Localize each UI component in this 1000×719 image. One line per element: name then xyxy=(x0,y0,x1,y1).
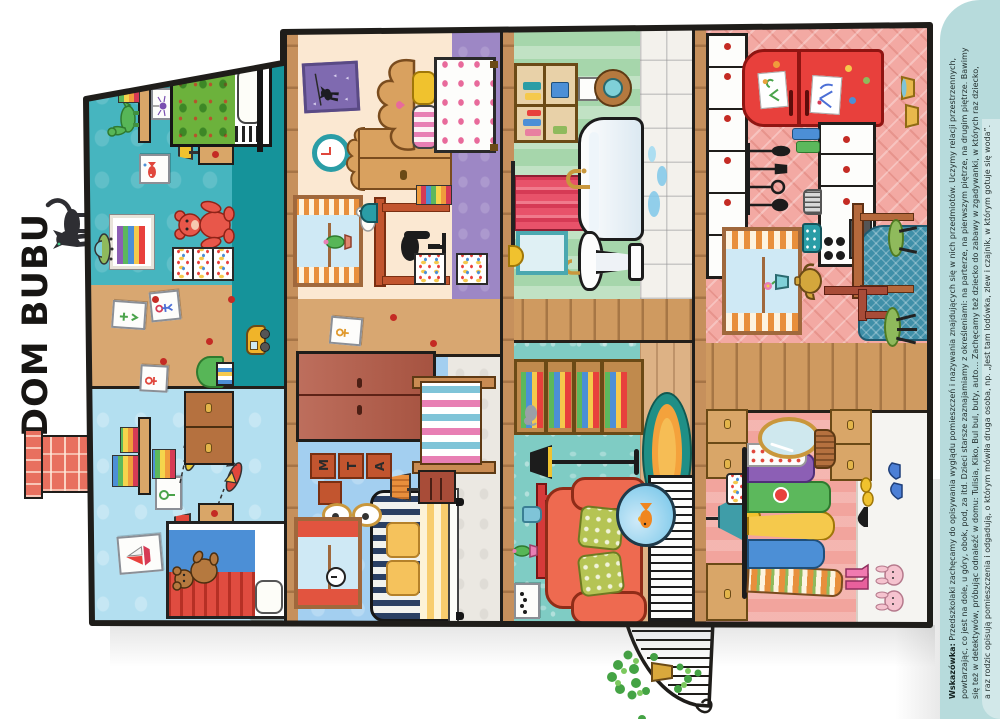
oval-mirror xyxy=(758,417,820,459)
fish-picture xyxy=(139,154,170,184)
shower-head xyxy=(578,67,634,111)
svg-text:T: T xyxy=(345,461,359,470)
garment-striped-pants xyxy=(746,565,843,598)
cat-figure xyxy=(42,191,90,255)
book-stack xyxy=(416,185,452,205)
crib xyxy=(412,376,492,474)
fishbowl xyxy=(616,483,676,547)
black-shoe xyxy=(852,503,870,529)
storage-box xyxy=(456,253,488,285)
alarm-clock xyxy=(326,567,346,587)
ground-corridor xyxy=(706,337,930,413)
bunny-slippers xyxy=(874,561,906,613)
page-sheet: DOM BUBU xyxy=(0,0,1000,719)
bedroom-window xyxy=(294,517,362,609)
dollhouse: M T A xyxy=(0,0,1000,719)
floor-lamp xyxy=(530,441,642,481)
teddy-bear-red xyxy=(175,201,235,249)
teddy-bear-brown xyxy=(170,549,220,595)
floor1-corridor xyxy=(514,293,692,343)
kid-drawing xyxy=(111,300,147,330)
svg-text:A: A xyxy=(373,461,387,471)
gallery-frame: M xyxy=(310,453,336,479)
book-stack xyxy=(118,81,140,103)
svg-text:M: M xyxy=(317,459,331,471)
page-title: DOM BUBU xyxy=(16,227,56,437)
garment-yellow-dress xyxy=(747,511,835,541)
playroom-dresser xyxy=(184,391,234,465)
sailboat-picture xyxy=(116,533,163,575)
kid-drawing xyxy=(149,290,182,323)
striped-box xyxy=(216,362,234,386)
hint-label: Wskazówka: xyxy=(948,643,957,699)
bookshelf xyxy=(514,359,644,435)
green-stool xyxy=(888,223,918,257)
cat-picture xyxy=(302,61,361,114)
chimney xyxy=(24,429,94,499)
rotated-page: DOM BUBU xyxy=(0,0,1000,719)
basket xyxy=(814,429,836,469)
storage-box xyxy=(212,247,234,281)
kid-drawing xyxy=(329,316,363,347)
storage-box xyxy=(192,247,214,281)
paw-picture xyxy=(514,583,540,619)
page-shadow-left xyxy=(110,625,935,667)
teapot xyxy=(790,261,824,301)
gallery-frame: A xyxy=(366,453,392,479)
curtain-rod xyxy=(511,161,515,249)
soap-bottles xyxy=(792,127,818,153)
box-shelf xyxy=(110,215,154,269)
flower-vase xyxy=(762,269,792,295)
hint-strip: Wskazówka: Przedszkolaki zachęcamy do op… xyxy=(940,0,1000,719)
utensil-rack xyxy=(744,141,794,217)
dino-toy xyxy=(104,99,140,139)
gallery-frame xyxy=(318,481,342,505)
blue-heels xyxy=(880,461,906,501)
kitchen-counter xyxy=(818,122,876,217)
ufo-toy xyxy=(88,231,114,267)
hint-line-2: powtarzając, co jest na dole, u góry, ob… xyxy=(959,4,971,699)
storage-box xyxy=(172,247,194,281)
fridge xyxy=(742,49,884,127)
elephant-figurine xyxy=(519,400,539,426)
fridge-drawing xyxy=(757,71,788,109)
desk-lamp xyxy=(360,203,378,223)
fridge-drawing xyxy=(810,75,843,115)
pink-boots xyxy=(844,563,874,593)
parents-bed xyxy=(370,496,462,622)
cactus-pot xyxy=(512,541,538,561)
kid-drawing xyxy=(139,364,168,392)
tub-faucet xyxy=(566,163,592,193)
orange-lamp xyxy=(390,475,420,503)
hint-line-3: się też w detektywów, próbując odnaleźć … xyxy=(970,4,982,699)
cooking-pot xyxy=(802,223,822,253)
toy-car xyxy=(244,325,268,355)
gallery-frame: T xyxy=(338,453,364,479)
storage-box xyxy=(414,253,446,285)
kids-bed xyxy=(170,63,272,147)
garment-green-coat xyxy=(747,481,831,513)
blue-vase xyxy=(522,506,542,523)
shoe-dresser xyxy=(830,409,872,481)
hint-line-4: a raz rodzic opisują pomieszczenia i odg… xyxy=(982,4,994,699)
pet-bowls xyxy=(898,73,924,129)
cactus xyxy=(323,231,351,253)
parents-nightstand xyxy=(418,470,456,504)
canopy-bed xyxy=(370,57,498,153)
garment-blue-jacket xyxy=(747,539,825,569)
clothes-rail xyxy=(738,447,840,599)
book-stack xyxy=(120,427,139,453)
hint-line-1: Wskazówka: Przedszkolaki zachęcamy do op… xyxy=(947,4,959,699)
playroom-shelf xyxy=(138,417,151,495)
floor2-corridor xyxy=(298,293,500,357)
water-puddle xyxy=(642,134,672,224)
green-stool xyxy=(884,311,918,347)
kitchen-chair xyxy=(824,285,890,321)
toiletry-shelf xyxy=(514,63,578,143)
book-stack xyxy=(112,455,139,487)
toaster xyxy=(803,189,822,215)
pedestal-sink xyxy=(576,235,642,291)
